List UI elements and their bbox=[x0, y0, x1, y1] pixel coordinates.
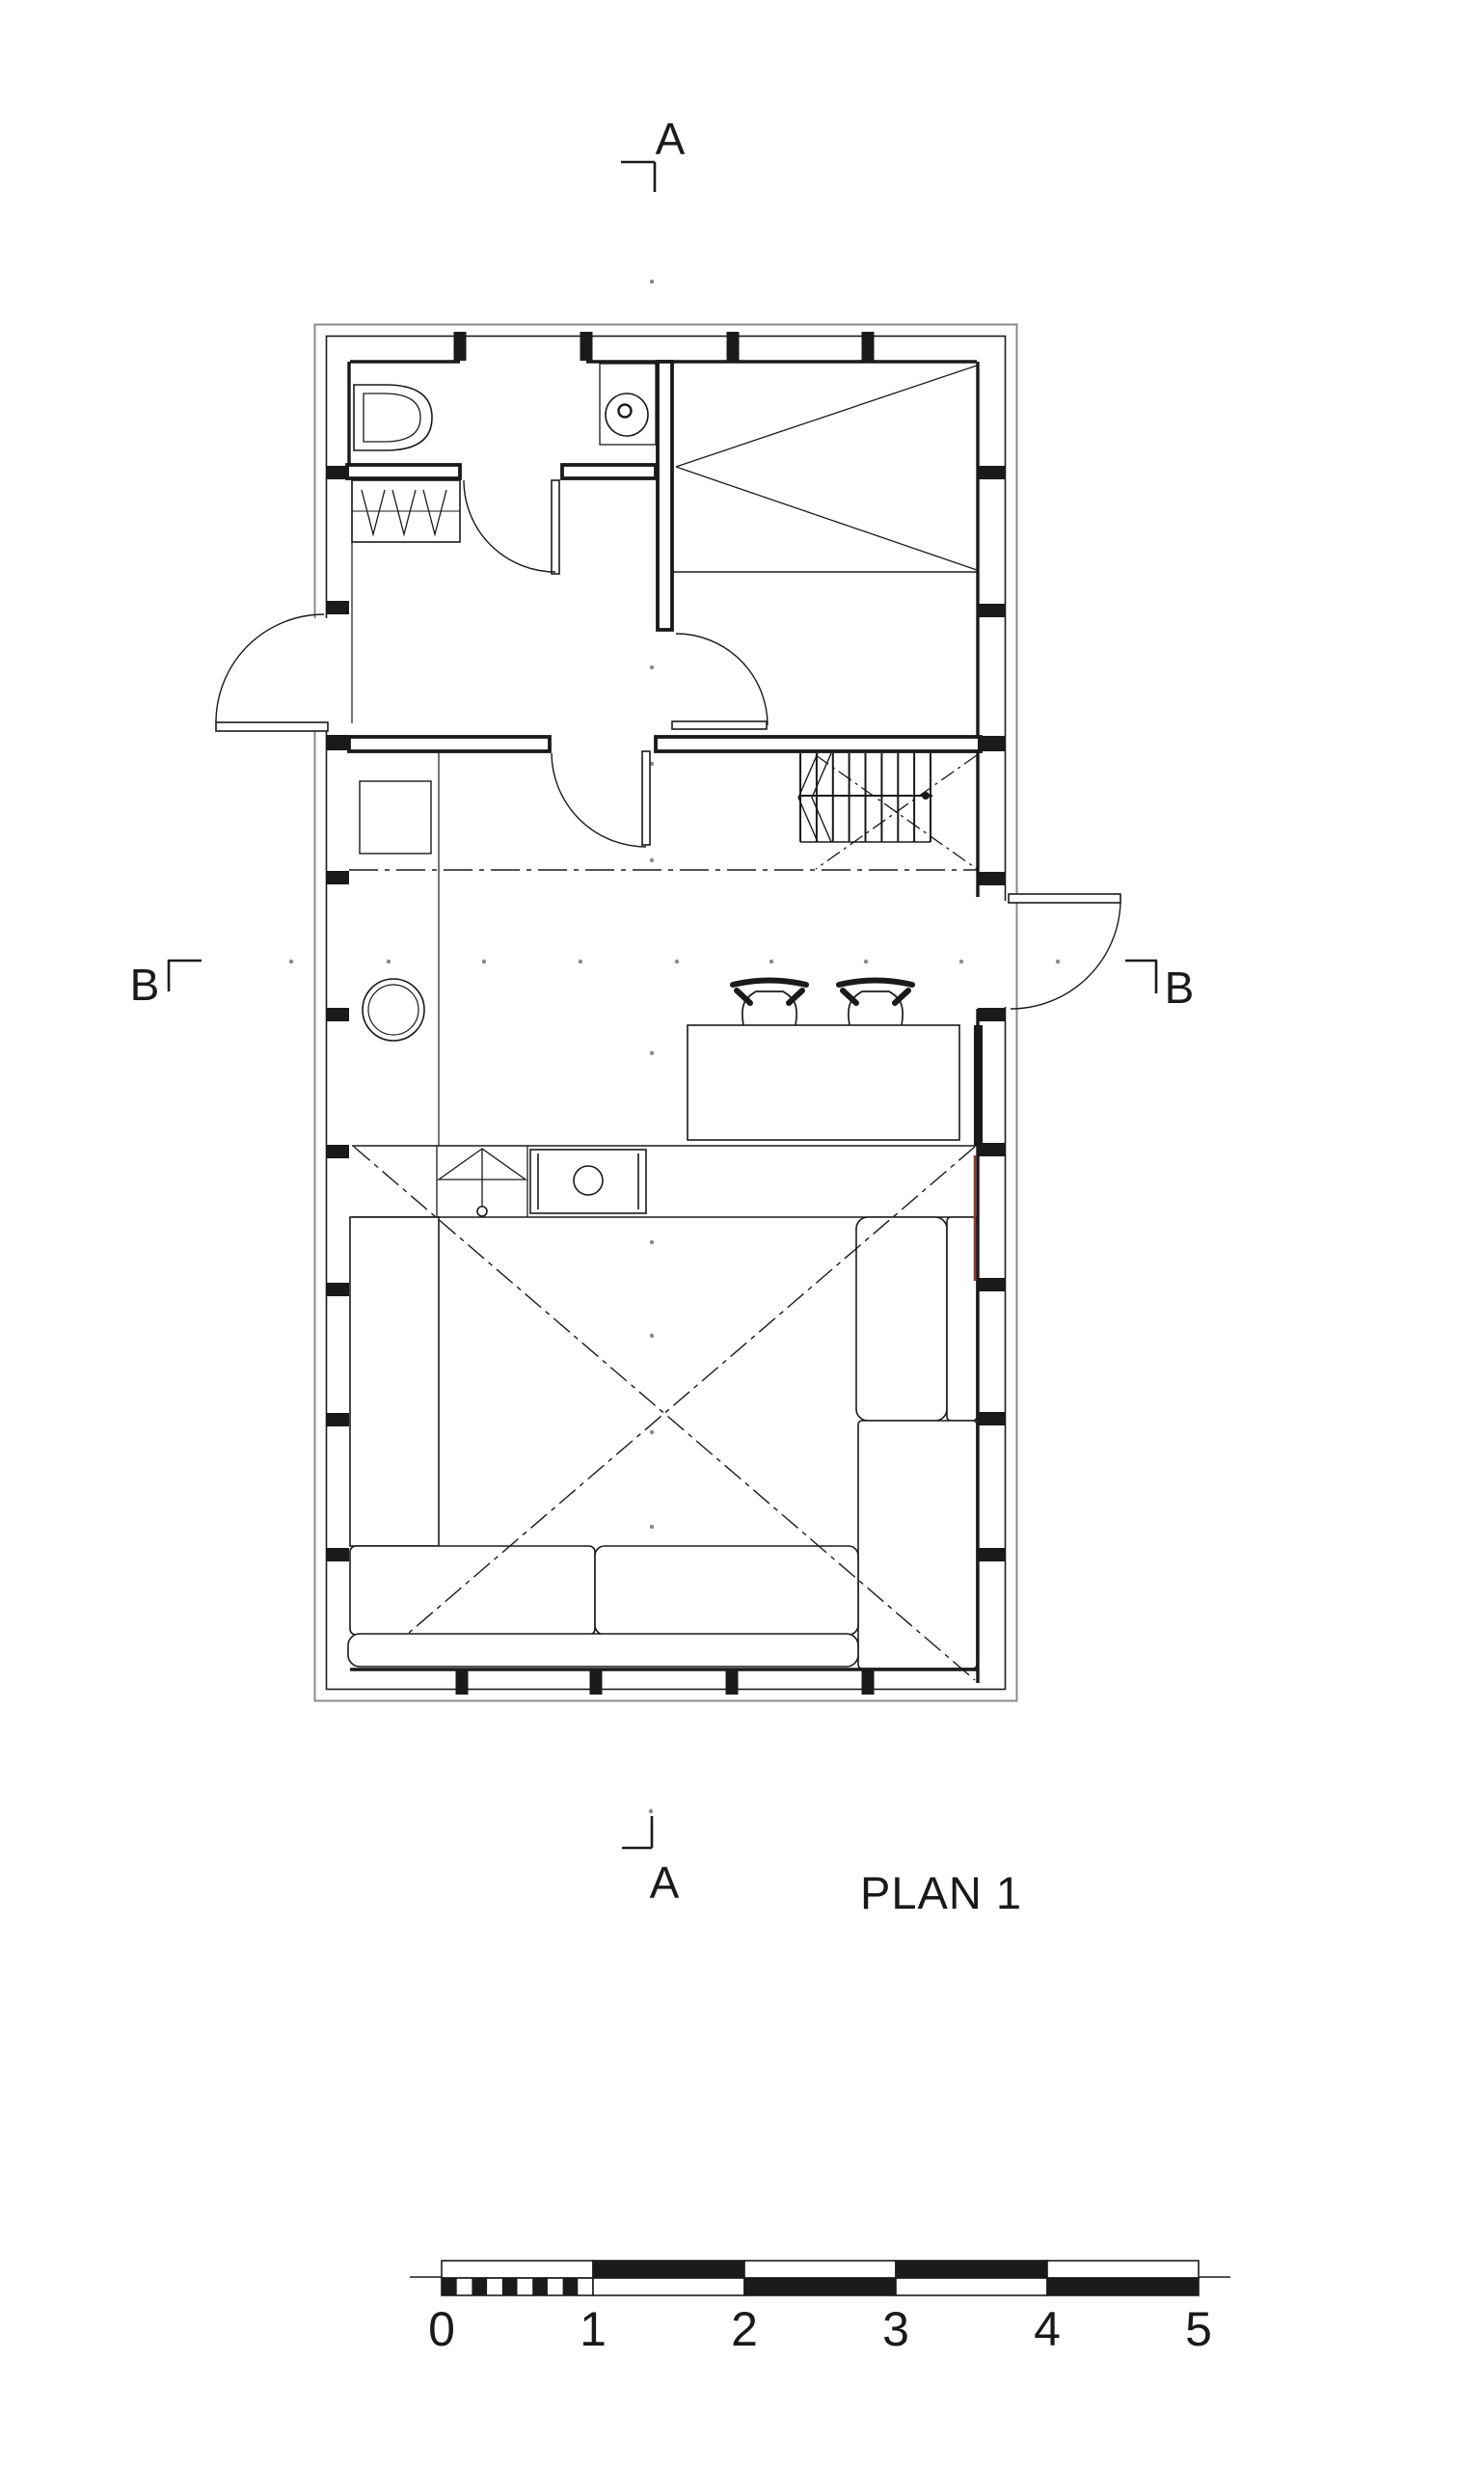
section-b-left-mark bbox=[169, 960, 202, 991]
sideboard bbox=[350, 1217, 439, 1546]
floor-plan-drawing: A A B B PLAN 1 bbox=[0, 0, 1484, 2469]
section-a-bottom-mark bbox=[622, 1816, 652, 1848]
bathroom-door bbox=[464, 480, 559, 574]
sofa-back-left bbox=[350, 1546, 595, 1635]
stair-void-cross bbox=[816, 755, 977, 869]
kitchen-door bbox=[552, 751, 650, 847]
wardrobe bbox=[352, 480, 460, 542]
scale-tick: 0 bbox=[428, 2302, 455, 2356]
scale-bar-ticks: 0 1 2 3 4 5 bbox=[428, 2302, 1212, 2356]
wash-basin bbox=[600, 364, 656, 445]
armchair bbox=[856, 1217, 947, 1421]
sink-unit bbox=[439, 1149, 526, 1216]
staircase bbox=[798, 753, 977, 869]
section-a-top-label: A bbox=[656, 114, 686, 164]
toilet bbox=[354, 385, 432, 450]
dining-table bbox=[688, 1025, 959, 1140]
scale-tick: 5 bbox=[1185, 2302, 1212, 2356]
double-bed bbox=[673, 366, 977, 572]
scale-tick: 1 bbox=[580, 2302, 607, 2356]
section-a-top-mark bbox=[621, 162, 655, 192]
sofa-seat bbox=[348, 1634, 858, 1667]
scale-tick: 4 bbox=[1034, 2302, 1061, 2356]
cooktop bbox=[530, 1150, 646, 1213]
section-b-right-label: B bbox=[1165, 963, 1195, 1013]
plan-title: PLAN 1 bbox=[860, 1867, 1022, 1918]
sofa-back-right bbox=[595, 1546, 858, 1635]
interior-walls bbox=[347, 362, 981, 751]
bedroom-door bbox=[672, 634, 768, 729]
kitchen-counter bbox=[352, 1146, 977, 1217]
bar-stool bbox=[733, 981, 806, 1026]
section-b-right-mark bbox=[1125, 961, 1157, 993]
stair-break-line bbox=[798, 753, 831, 842]
bar-stool bbox=[839, 981, 912, 1026]
scale-tick: 3 bbox=[882, 2302, 909, 2356]
armchair-side bbox=[947, 1217, 977, 1421]
scale-bar: 0 1 2 3 4 5 bbox=[410, 2261, 1230, 2356]
wall-panel bbox=[974, 1025, 983, 1146]
side-door bbox=[1009, 894, 1120, 1009]
section-b-left-label: B bbox=[130, 960, 160, 1010]
scale-tick: 2 bbox=[731, 2302, 758, 2356]
round-table bbox=[363, 979, 424, 1041]
section-a-bottom-label: A bbox=[650, 1858, 680, 1908]
cabinet bbox=[360, 781, 431, 854]
floor-plan-sheet: A A B B PLAN 1 bbox=[0, 0, 1484, 2469]
